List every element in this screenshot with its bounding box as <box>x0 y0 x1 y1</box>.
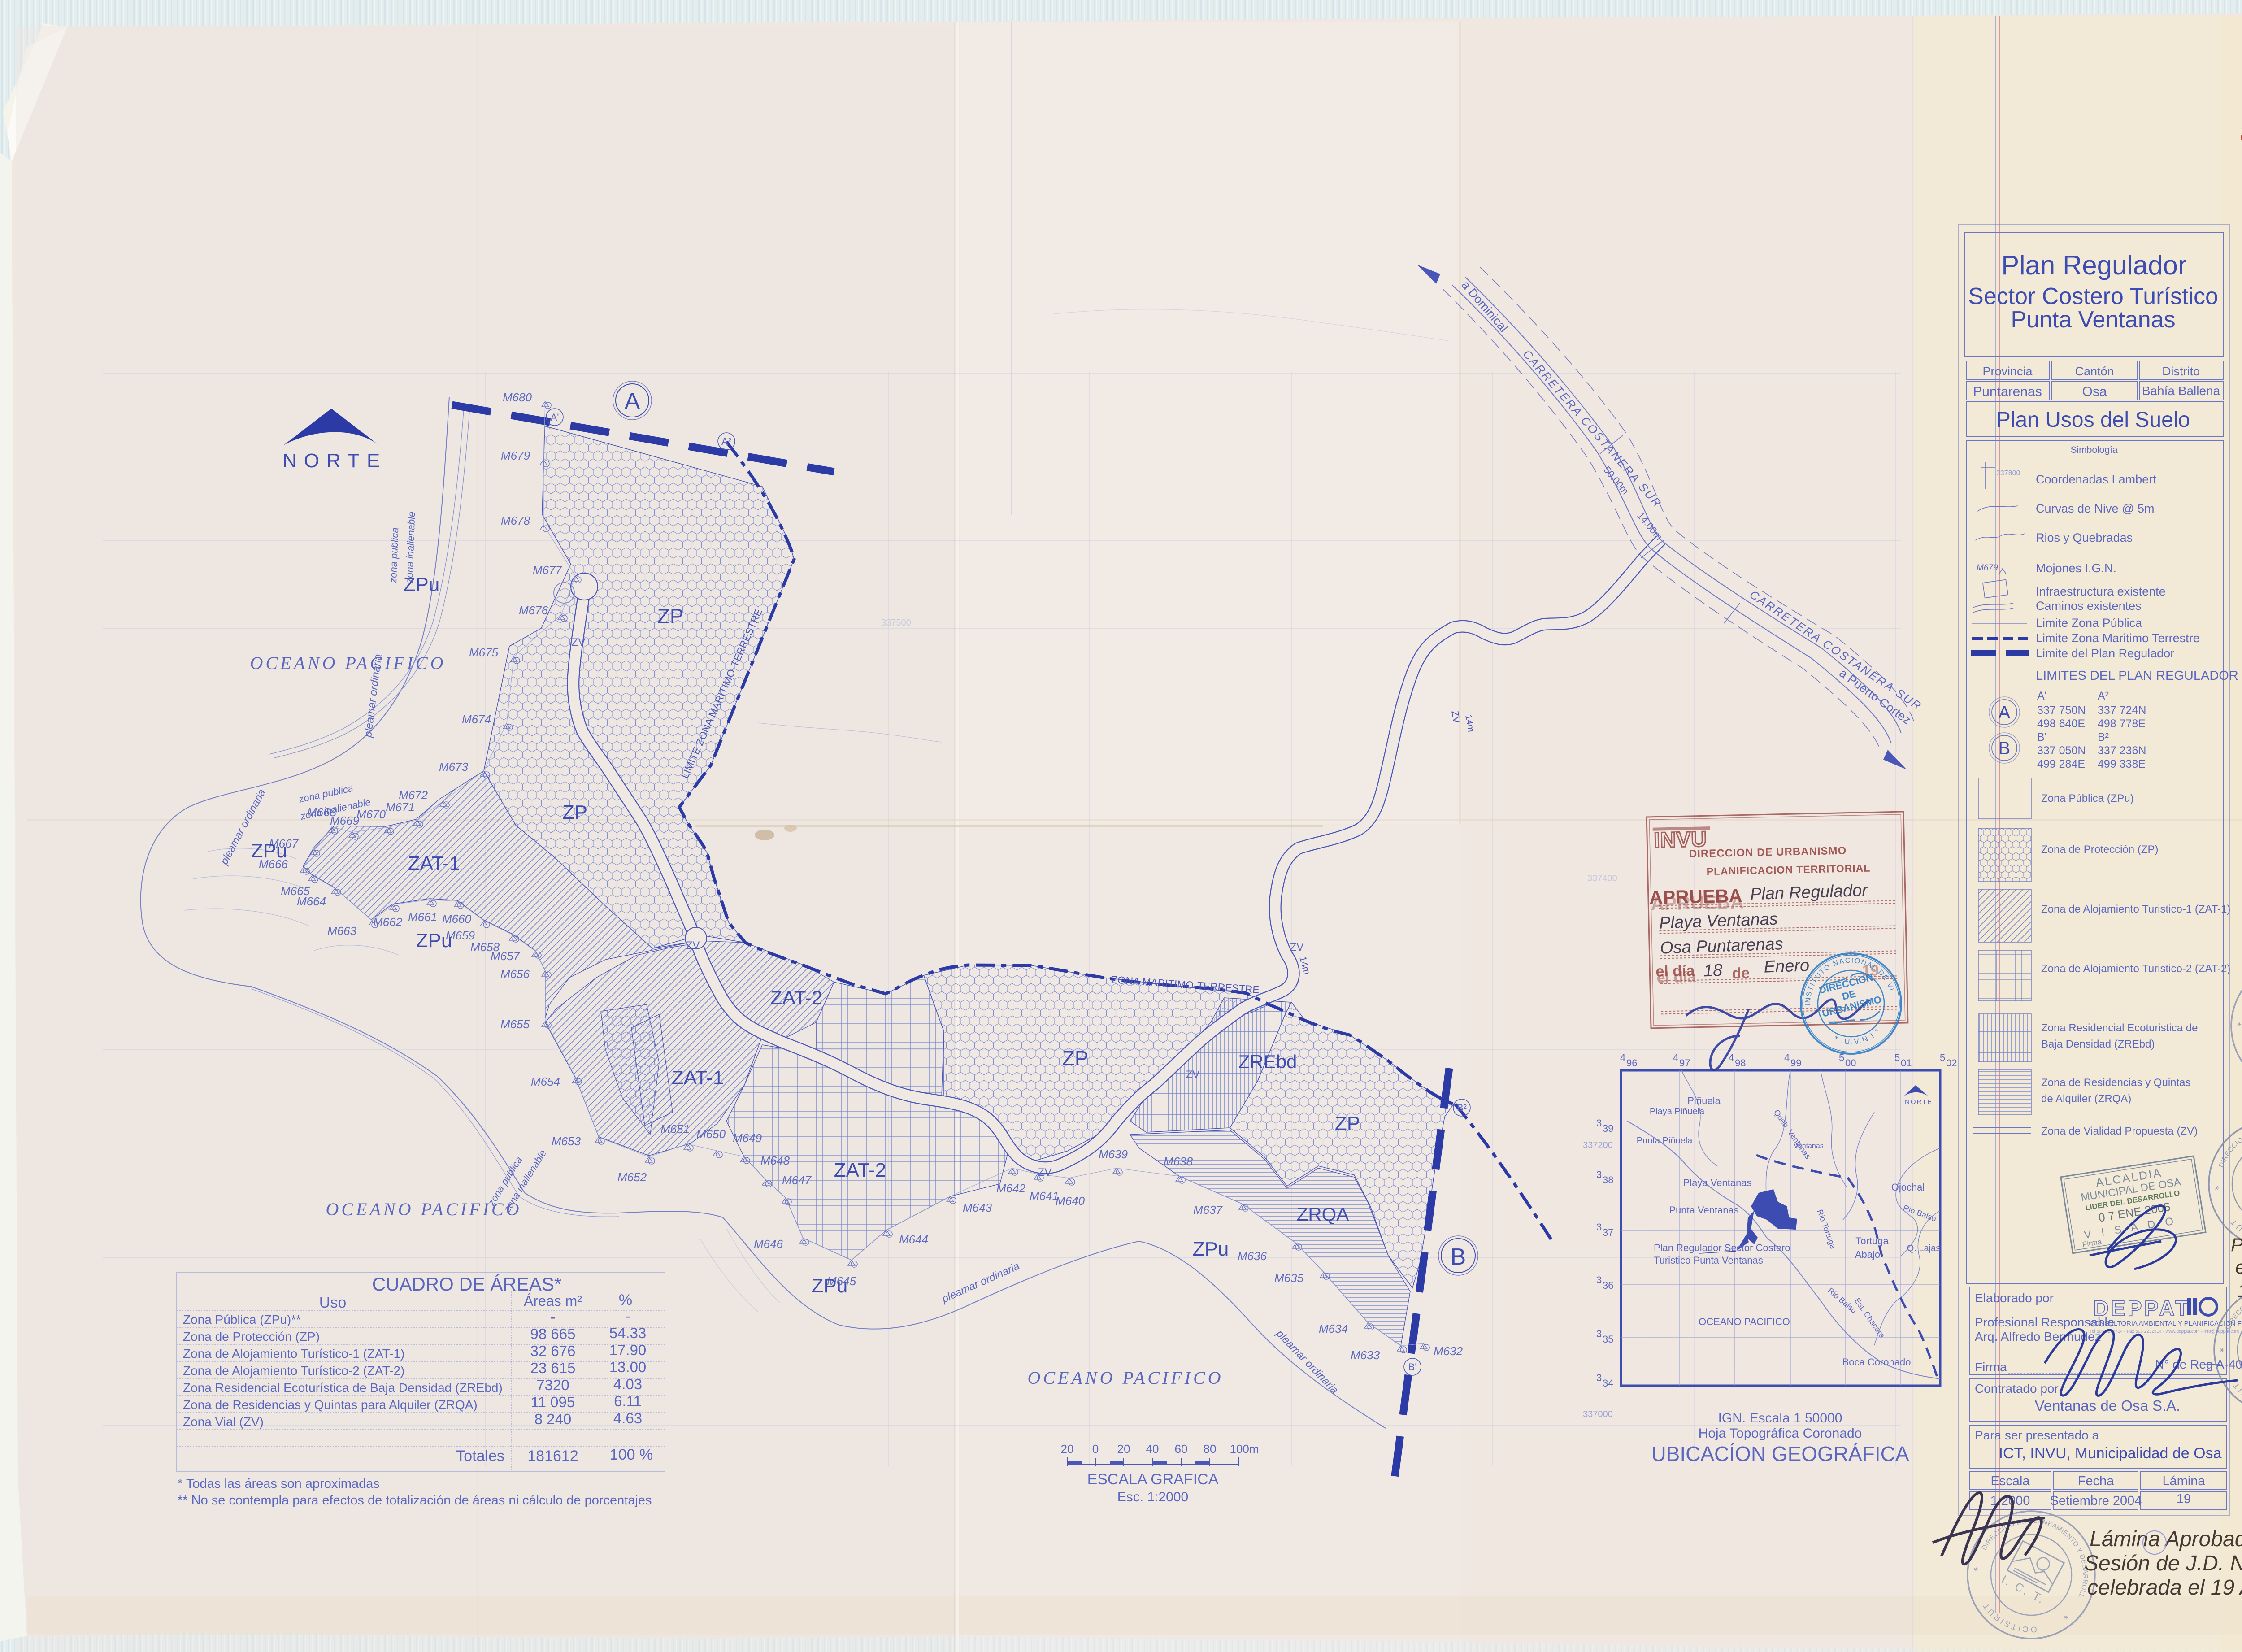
svg-text:5: 5 <box>1894 1052 1900 1063</box>
svg-text:3: 3 <box>1596 1169 1602 1180</box>
svg-text:M655: M655 <box>500 1017 530 1031</box>
svg-text:A²: A² <box>721 436 731 447</box>
svg-text:Zona de Alojamiento Turístico-: Zona de Alojamiento Turístico-2 (ZAT-2) <box>183 1364 404 1378</box>
svg-text:Coordenadas Lambert: Coordenadas Lambert <box>2036 473 2156 486</box>
svg-text:Punta Piñuela: Punta Piñuela <box>1637 1136 1693 1146</box>
svg-text:ZP: ZP <box>1335 1113 1360 1135</box>
svg-text:M639: M639 <box>1099 1148 1128 1161</box>
svg-text:Zona de Alojamiento Turistico-: Zona de Alojamiento Turistico-1 (ZAT-1) <box>2041 903 2230 915</box>
svg-text:Zona de Vialidad Propuesta (ZV: Zona de Vialidad Propuesta (ZV) <box>2041 1125 2198 1137</box>
svg-text:ZPu: ZPu <box>812 1275 848 1297</box>
svg-text:B²: B² <box>1457 1102 1467 1113</box>
svg-text:M662: M662 <box>373 915 403 929</box>
svg-text:Plan Regulador: Plan Regulador <box>2001 250 2187 280</box>
svg-text:Escala: Escala <box>1990 1474 2030 1488</box>
svg-text:M660: M660 <box>442 912 472 926</box>
svg-text:337 236N: 337 236N <box>2098 744 2146 757</box>
svg-text:ZP: ZP <box>657 604 684 628</box>
svg-text:5: 5 <box>1940 1052 1945 1063</box>
svg-text:B': B' <box>1408 1361 1417 1373</box>
svg-text:4: 4 <box>1729 1052 1734 1063</box>
svg-text:Hoja Topográfica Coronado: Hoja Topográfica Coronado <box>1699 1426 1862 1441</box>
svg-text:M641: M641 <box>1030 1189 1059 1203</box>
svg-text:4: 4 <box>1673 1052 1678 1063</box>
svg-text:00: 00 <box>1845 1057 1856 1069</box>
svg-text:M654: M654 <box>531 1075 560 1088</box>
svg-text:337400: 337400 <box>1587 874 1617 883</box>
svg-text:Uso: Uso <box>319 1294 346 1311</box>
svg-text:337 050N: 337 050N <box>2037 744 2086 757</box>
svg-text:7320: 7320 <box>536 1377 569 1393</box>
svg-text:ZV: ZV <box>1290 941 1304 953</box>
svg-text:de: de <box>1732 965 1750 982</box>
svg-text:Boca Coronado: Boca Coronado <box>1842 1356 1911 1368</box>
svg-text:Para ser presentado a: Para ser presentado a <box>1975 1428 2099 1442</box>
svg-text:3: 3 <box>1596 1328 1602 1339</box>
svg-text:337800: 337800 <box>1996 470 2020 477</box>
svg-text:M652: M652 <box>617 1170 647 1184</box>
svg-text:Tortuga: Tortuga <box>1855 1235 1889 1247</box>
svg-text:Lámina: Lámina <box>2162 1474 2205 1488</box>
svg-text:34: 34 <box>1603 1378 1613 1389</box>
svg-text:97: 97 <box>1679 1057 1690 1069</box>
svg-text:%: % <box>619 1291 632 1309</box>
svg-text:Playa Piñuela: Playa Piñuela <box>1650 1107 1705 1117</box>
svg-text:Sesión de J.D. Nº 5354: Sesión de J.D. Nº 5354 <box>2084 1552 2242 1575</box>
svg-text:de Alquiler (ZRQA): de Alquiler (ZRQA) <box>2041 1093 2131 1105</box>
svg-text:M670: M670 <box>356 808 386 821</box>
svg-text:B': B' <box>2037 731 2046 743</box>
svg-text:Punta Ventanas: Punta Ventanas <box>1669 1204 1738 1216</box>
svg-text:Mojones I.G.N.: Mojones I.G.N. <box>2036 561 2116 575</box>
svg-text:20: 20 <box>1117 1442 1130 1456</box>
svg-text:98: 98 <box>1735 1057 1746 1069</box>
svg-text:M636: M636 <box>1238 1249 1267 1263</box>
svg-text:23 615: 23 615 <box>530 1360 576 1376</box>
svg-text:Fecha: Fecha <box>2078 1474 2114 1488</box>
svg-text:en Gaceta.: en Gaceta. <box>2235 1256 2242 1278</box>
svg-text:Zona Pública (ZPu): Zona Pública (ZPu) <box>2041 792 2134 804</box>
svg-text:4.63: 4.63 <box>613 1410 642 1426</box>
svg-text:-: - <box>626 1308 630 1324</box>
svg-text:M656: M656 <box>500 967 530 981</box>
svg-text:M632: M632 <box>1434 1344 1463 1358</box>
svg-text:337200: 337200 <box>1583 1140 1613 1150</box>
svg-text:ZPu: ZPu <box>251 840 287 862</box>
svg-text:Ojochal: Ojochal <box>1891 1182 1925 1193</box>
svg-text:ZV: ZV <box>1449 710 1463 724</box>
svg-text:Simbología: Simbología <box>2070 445 2117 455</box>
svg-text:Zona de Protección (ZP): Zona de Protección (ZP) <box>183 1330 320 1343</box>
svg-text:36: 36 <box>1603 1280 1613 1291</box>
svg-text:Osa: Osa <box>2082 384 2107 399</box>
svg-text:Playa Ventanas: Playa Ventanas <box>1683 1177 1752 1188</box>
svg-text:19: 19 <box>2177 1492 2191 1506</box>
svg-text:38: 38 <box>1603 1174 1613 1186</box>
svg-text:17.90: 17.90 <box>609 1342 647 1358</box>
svg-text:Piñuela: Piñuela <box>1687 1095 1721 1106</box>
svg-text:M664: M664 <box>297 895 326 908</box>
svg-text:Plan Usos del Suelo: Plan Usos del Suelo <box>1996 408 2190 432</box>
svg-text:Esc. 1:2000: Esc. 1:2000 <box>1117 1490 1188 1504</box>
svg-text:37: 37 <box>1603 1227 1613 1238</box>
svg-text:ZV: ZV <box>572 636 586 648</box>
svg-text:499 284E: 499 284E <box>2037 758 2085 770</box>
svg-text:Curvas de Nive @ 5m: Curvas de Nive @ 5m <box>2036 502 2155 515</box>
svg-text:8 240: 8 240 <box>534 1411 572 1427</box>
svg-text:NORTE: NORTE <box>1905 1098 1933 1106</box>
svg-text:M633: M633 <box>1351 1348 1380 1362</box>
svg-text:M674: M674 <box>462 713 491 726</box>
svg-text:el día: el día <box>1656 969 1696 987</box>
svg-text:ZPu: ZPu <box>416 930 452 952</box>
svg-text:Zona de Alojamiento Turistico-: Zona de Alojamiento Turistico-2 (ZAT-2) <box>2041 963 2230 975</box>
svg-text:ZAT-2: ZAT-2 <box>770 987 823 1009</box>
svg-text:M640: M640 <box>1056 1194 1085 1208</box>
svg-text:M679: M679 <box>1977 563 1998 573</box>
svg-text:Turistico Punta Ventanas: Turistico Punta Ventanas <box>1654 1255 1763 1266</box>
svg-text:LIMITES DEL PLAN REGULADOR: LIMITES DEL PLAN REGULADOR <box>2036 669 2238 683</box>
svg-text:Rios y Quebradas: Rios y Quebradas <box>2036 531 2133 544</box>
svg-text:498 640E: 498 640E <box>2037 717 2085 730</box>
svg-text:4.03: 4.03 <box>613 1376 642 1392</box>
svg-text:498 778E: 498 778E <box>2098 717 2146 730</box>
svg-text:Q. Lajas: Q. Lajas <box>1907 1243 1940 1253</box>
svg-text:ESCALA GRAFICA: ESCALA GRAFICA <box>1087 1471 1219 1488</box>
svg-text:98 665: 98 665 <box>530 1326 576 1342</box>
svg-text:ZV: ZV <box>1038 1166 1052 1178</box>
svg-text:100m: 100m <box>1230 1442 1259 1456</box>
svg-text:ZAT-1: ZAT-1 <box>408 852 461 874</box>
svg-text:ZREbd: ZREbd <box>1238 1051 1297 1072</box>
svg-text:M675: M675 <box>469 646 499 659</box>
svg-text:A²: A² <box>2098 690 2109 702</box>
svg-text:Contratado por: Contratado por <box>1975 1382 2059 1396</box>
svg-text:ZAT-2: ZAT-2 <box>834 1159 886 1181</box>
svg-text:M650: M650 <box>696 1127 726 1141</box>
svg-text:UBICACÍON GEOGRÁFICA: UBICACÍON GEOGRÁFICA <box>1651 1442 1909 1465</box>
svg-text:ZV: ZV <box>1186 1069 1200 1081</box>
svg-text:Cantón: Cantón <box>2075 365 2114 378</box>
svg-text:Para publicación: Para publicación <box>2231 1234 2242 1255</box>
svg-text:337 750N: 337 750N <box>2037 704 2086 717</box>
svg-text:Puntarenas: Puntarenas <box>1973 384 2042 399</box>
svg-text:N° de Reg A-4043: N° de Reg A-4043 <box>2155 1357 2242 1371</box>
svg-text:11 095: 11 095 <box>531 1394 575 1410</box>
svg-text:A': A' <box>2037 690 2046 702</box>
svg-text:0: 0 <box>1092 1442 1099 1456</box>
svg-text:M651: M651 <box>660 1122 690 1136</box>
svg-text:NORTE: NORTE <box>282 450 387 472</box>
svg-text:M663: M663 <box>327 924 357 938</box>
svg-text:APRUEBA: APRUEBA <box>1651 891 1744 914</box>
svg-text:6.11: 6.11 <box>614 1393 642 1409</box>
svg-text:Firma: Firma <box>1975 1360 2007 1374</box>
svg-text:ZP: ZP <box>562 801 587 823</box>
svg-text:02: 02 <box>1946 1057 1957 1069</box>
svg-text:499 338E: 499 338E <box>2098 758 2146 770</box>
svg-text:ZAT-1: ZAT-1 <box>672 1067 724 1089</box>
svg-text:ICT, INVU, Municipalidad de Os: ICT, INVU, Municipalidad de Osa <box>1999 1445 2222 1462</box>
svg-text:Enero: Enero <box>1764 956 1810 977</box>
svg-text:80: 80 <box>1204 1442 1217 1456</box>
svg-text:Zona Pública (ZPu)**: Zona Pública (ZPu)** <box>183 1313 301 1326</box>
svg-text:35: 35 <box>1603 1334 1613 1345</box>
svg-text:Ventanas: Ventanas <box>1794 1142 1824 1150</box>
svg-text:Baja Densidad (ZREbd): Baja Densidad (ZREbd) <box>2041 1038 2155 1050</box>
svg-text:54.33: 54.33 <box>609 1325 647 1341</box>
svg-text:3: 3 <box>1596 1372 1602 1383</box>
svg-text:ZRQA: ZRQA <box>1297 1204 1349 1225</box>
svg-text:Áreas m²: Áreas m² <box>524 1293 582 1309</box>
svg-text:M649: M649 <box>733 1131 762 1145</box>
svg-text:96: 96 <box>1626 1057 1637 1069</box>
svg-text:M661: M661 <box>408 910 437 924</box>
svg-text:Zona de Residencias y Quintas: Zona de Residencias y Quintas para Alqui… <box>183 1398 478 1412</box>
svg-text:M648: M648 <box>760 1154 790 1167</box>
svg-text:B: B <box>1999 739 2011 758</box>
svg-text:Infraestructura existente: Infraestructura existente <box>2036 585 2166 598</box>
svg-text:13.00: 13.00 <box>609 1359 647 1375</box>
svg-text:40: 40 <box>1146 1442 1159 1456</box>
svg-text:M637: M637 <box>1193 1203 1223 1217</box>
svg-text:M678: M678 <box>501 514 530 527</box>
svg-text:OCEANO PACIFICO: OCEANO PACIFICO <box>1027 1368 1223 1388</box>
svg-text:OCEANO PACIFICO: OCEANO PACIFICO <box>250 653 446 673</box>
svg-text:100 %: 100 % <box>610 1446 653 1463</box>
svg-text:zona publica: zona publica <box>387 527 400 583</box>
svg-text:M646: M646 <box>754 1237 783 1251</box>
svg-text:337000: 337000 <box>1583 1409 1613 1419</box>
svg-text:Ventanas de Osa S.A.: Ventanas de Osa S.A. <box>2035 1397 2181 1414</box>
svg-text:Distrito: Distrito <box>2162 365 2200 378</box>
svg-text:39: 39 <box>1603 1123 1613 1134</box>
svg-text:A': A' <box>551 412 559 423</box>
svg-text:Zona de Protección (ZP): Zona de Protección (ZP) <box>2041 843 2158 856</box>
svg-text:Zona de Alojamiento Turístico-: Zona de Alojamiento Turístico-1 (ZAT-1) <box>183 1347 404 1361</box>
svg-text:3: 3 <box>1596 1274 1602 1286</box>
svg-text:3: 3 <box>1596 1117 1602 1129</box>
svg-text:99: 99 <box>1790 1057 1801 1069</box>
svg-text:ZV: ZV <box>686 939 700 952</box>
svg-text:01: 01 <box>1901 1057 1912 1069</box>
svg-text:Caminos existentes: Caminos existentes <box>2036 599 2142 613</box>
svg-text:181612: 181612 <box>527 1448 578 1465</box>
svg-text:Plan Regulador Sector Costero: Plan Regulador Sector Costero <box>1654 1242 1790 1253</box>
svg-text:M672: M672 <box>399 788 428 802</box>
svg-text:M643: M643 <box>963 1201 992 1214</box>
svg-text:M653: M653 <box>552 1135 581 1148</box>
svg-text:18: 18 <box>1703 961 1723 980</box>
svg-text:M644: M644 <box>899 1233 928 1246</box>
svg-text:12-01-2005.: 12-01-2005. <box>2238 1280 2242 1301</box>
svg-text:** No se contempla para efecto: ** No se contempla para efectos de total… <box>178 1493 652 1508</box>
svg-text:M679: M679 <box>501 449 530 462</box>
svg-text:A: A <box>625 388 640 414</box>
svg-text:M634: M634 <box>1319 1322 1348 1335</box>
svg-text:Setiembre 2004: Setiembre 2004 <box>2050 1494 2142 1508</box>
svg-text:M635: M635 <box>1274 1271 1304 1285</box>
svg-text:M657: M657 <box>491 949 521 963</box>
svg-text:B²: B² <box>2098 731 2109 743</box>
svg-text:Abajo: Abajo <box>1855 1249 1880 1260</box>
svg-text:M673: M673 <box>439 760 469 774</box>
svg-text:Zona Residencial Ecoturistica: Zona Residencial Ecoturistica de <box>2041 1022 2198 1034</box>
svg-text:4: 4 <box>1620 1052 1625 1063</box>
svg-text:M680: M680 <box>503 391 532 404</box>
svg-text:60: 60 <box>1175 1442 1188 1456</box>
svg-text:ZPu: ZPu <box>1193 1238 1229 1260</box>
svg-text:-: - <box>551 1309 556 1325</box>
svg-text:OCEANO PACIFICO: OCEANO PACIFICO <box>1699 1316 1790 1327</box>
svg-text:4: 4 <box>1784 1052 1790 1063</box>
svg-text:B: B <box>1451 1244 1466 1270</box>
svg-text:337500: 337500 <box>881 618 911 628</box>
svg-text:ZP: ZP <box>1062 1047 1089 1070</box>
svg-text:3: 3 <box>1596 1222 1602 1233</box>
svg-text:Bahía Ballena: Bahía Ballena <box>2142 384 2220 398</box>
svg-text:Zona Vial (ZV): Zona Vial (ZV) <box>183 1415 264 1429</box>
svg-text:Sector Costero Turístico: Sector Costero Turístico <box>1968 283 2218 309</box>
svg-text:M676: M676 <box>519 604 548 617</box>
svg-text:Zona de Residencias y Quintas: Zona de Residencias y Quintas <box>2041 1077 2191 1089</box>
svg-text:337 724N: 337 724N <box>2098 704 2146 717</box>
svg-text:20: 20 <box>1061 1442 1074 1456</box>
svg-text:CUADRO DE ÁREAS*: CUADRO DE ÁREAS* <box>372 1274 561 1295</box>
svg-text:Profesional Responsable: Profesional Responsable <box>1975 1315 2114 1329</box>
svg-text:A: A <box>1999 703 2011 722</box>
svg-text:IGN. Escala 1 50000: IGN. Escala 1 50000 <box>1718 1411 1842 1426</box>
svg-text:M638: M638 <box>1164 1155 1193 1168</box>
svg-text:Limite Zona Pública: Limite Zona Pública <box>2036 616 2142 630</box>
svg-text:M642: M642 <box>996 1182 1026 1195</box>
svg-text:Totales: Totales <box>456 1448 504 1465</box>
svg-text:Provincia: Provincia <box>1982 365 2033 378</box>
svg-text:Limite del Plan Regulador: Limite del Plan Regulador <box>2036 647 2174 660</box>
svg-text:* Todas las áreas son aproxima: * Todas las áreas son aproximadas <box>178 1477 380 1491</box>
svg-text:M671: M671 <box>386 800 415 814</box>
svg-text:32 676: 32 676 <box>530 1343 576 1359</box>
svg-text:M677: M677 <box>533 563 563 577</box>
svg-text:Zona Residencial Ecoturística: Zona Residencial Ecoturística de Baja De… <box>183 1381 503 1395</box>
svg-text:M647: M647 <box>782 1174 812 1187</box>
svg-text:Punta Ventanas: Punta Ventanas <box>2011 307 2175 333</box>
svg-text:Elaborado por: Elaborado por <box>1975 1291 2054 1305</box>
svg-text:celebrada el 19 Abril-2005.: celebrada el 19 Abril-2005. <box>2087 1576 2242 1600</box>
svg-text:Limite Zona Maritimo Terrestre: Limite Zona Maritimo Terrestre <box>2036 631 2200 645</box>
